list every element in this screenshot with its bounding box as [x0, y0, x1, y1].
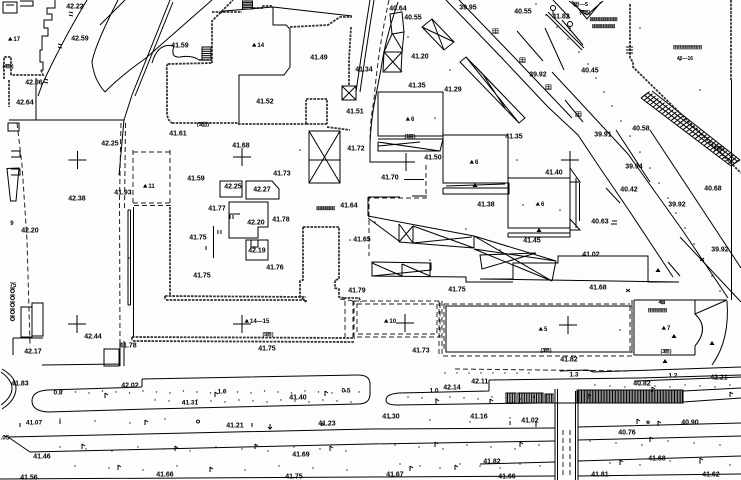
- svg-text:41.31: 41.31: [182, 399, 199, 406]
- svg-text:(1: (1: [405, 134, 410, 140]
- svg-text:): ): [12, 64, 14, 70]
- svg-text:41.35: 41.35: [408, 83, 426, 90]
- svg-text:.05: .05: [1, 434, 10, 441]
- svg-text:41.75: 41.75: [258, 346, 276, 353]
- svg-text:40.45: 40.45: [581, 68, 599, 75]
- svg-text:40.55: 40.55: [514, 9, 532, 16]
- svg-text:41.75: 41.75: [193, 273, 211, 280]
- svg-text:9: 9: [10, 221, 14, 227]
- svg-text:5: 5: [544, 327, 548, 333]
- svg-text:41.81: 41.81: [591, 472, 609, 479]
- svg-text:41.64: 41.64: [340, 203, 358, 210]
- svg-text:42.59: 42.59: [71, 36, 89, 43]
- svg-text:): ): [550, 348, 552, 354]
- svg-text:0.8: 0.8: [54, 389, 63, 396]
- svg-text:42.14: 42.14: [443, 385, 461, 392]
- svg-text:40.90: 40.90: [681, 420, 699, 427]
- svg-text:1.0: 1.0: [430, 387, 439, 394]
- svg-text:39.91: 39.91: [594, 132, 612, 139]
- svg-text:41.77: 41.77: [208, 206, 226, 213]
- svg-text:41.67: 41.67: [386, 472, 404, 479]
- svg-text:41.93: 41.93: [114, 190, 132, 197]
- svg-text:39.92: 39.92: [711, 247, 729, 254]
- svg-text:40.64: 40.64: [389, 6, 407, 13]
- svg-text:41.76: 41.76: [266, 265, 284, 272]
- svg-text:7: 7: [667, 326, 671, 332]
- svg-text:41.68: 41.68: [589, 285, 607, 292]
- svg-text:40.42: 40.42: [620, 187, 638, 194]
- svg-text:1.3: 1.3: [570, 371, 579, 378]
- svg-text:42.21: 42.21: [710, 375, 728, 382]
- svg-text:42.06: 42.06: [25, 80, 43, 87]
- svg-text:—5: —5: [580, 2, 589, 8]
- svg-text:41.49: 41.49: [310, 55, 328, 62]
- svg-text:41.23: 41.23: [318, 421, 336, 428]
- svg-text:1.0: 1.0: [218, 388, 227, 395]
- svg-text:(5: (5: [263, 332, 268, 338]
- svg-text:6: 6: [541, 202, 545, 208]
- svg-text:): ): [670, 349, 672, 355]
- svg-text:41.46: 41.46: [33, 454, 51, 461]
- svg-text:17: 17: [13, 37, 20, 43]
- svg-text:41.59: 41.59: [171, 43, 189, 50]
- svg-text:42.17: 42.17: [24, 349, 42, 356]
- svg-text:41.82: 41.82: [552, 14, 570, 21]
- svg-text:41.61: 41.61: [169, 131, 187, 138]
- svg-text:41.45: 41.45: [523, 238, 541, 245]
- svg-text:41.78: 41.78: [272, 217, 290, 224]
- svg-text:42.22: 42.22: [66, 4, 84, 11]
- svg-text:41.69: 41.69: [292, 452, 310, 459]
- svg-text:6: 6: [411, 117, 415, 123]
- svg-text:(4: (4: [3, 64, 8, 70]
- svg-text:41.82: 41.82: [560, 357, 578, 364]
- svg-text:41.66: 41.66: [156, 472, 174, 479]
- svg-text:40—16: 40—16: [677, 56, 693, 62]
- svg-text:41.21: 41.21: [226, 423, 244, 430]
- svg-text:40.55: 40.55: [404, 15, 422, 22]
- svg-text:40.58: 40.58: [632, 126, 650, 133]
- svg-text:6: 6: [475, 160, 479, 166]
- svg-text:0.5: 0.5: [342, 387, 351, 394]
- svg-text:41.68: 41.68: [232, 143, 250, 150]
- svg-text:40.82: 40.82: [633, 381, 651, 388]
- svg-text:42.02: 42.02: [121, 383, 139, 390]
- svg-text:42.25: 42.25: [101, 141, 119, 148]
- svg-text:(5: (5: [714, 146, 719, 152]
- svg-text:39.94: 39.94: [625, 164, 643, 171]
- svg-text:41.78: 41.78: [119, 343, 137, 350]
- svg-text:41.79: 41.79: [348, 288, 366, 295]
- svg-text:41.75: 41.75: [189, 235, 207, 242]
- svg-text:40.63: 40.63: [591, 219, 609, 226]
- svg-text:42.64: 42.64: [16, 100, 34, 107]
- svg-text:41.65: 41.65: [353, 237, 371, 244]
- svg-text:41.73: 41.73: [412, 348, 430, 355]
- svg-text:(3: (3: [661, 349, 666, 355]
- svg-text:41.20: 41.20: [411, 54, 429, 61]
- svg-text:41.29: 41.29: [444, 87, 462, 94]
- svg-text:(3: (3: [197, 122, 202, 128]
- svg-text:42.11: 42.11: [471, 379, 488, 386]
- svg-text:11: 11: [148, 184, 155, 190]
- svg-text:41.07: 41.07: [26, 419, 43, 426]
- svg-text:42.20: 42.20: [21, 228, 39, 235]
- svg-text:41.50: 41.50: [424, 155, 442, 162]
- svg-text:40.76: 40.76: [618, 430, 636, 437]
- svg-text:39.92: 39.92: [668, 202, 686, 209]
- svg-text:41.73: 41.73: [273, 171, 291, 178]
- svg-text:41.75: 41.75: [285, 474, 303, 480]
- svg-text:41.30: 41.30: [382, 414, 400, 421]
- svg-text:42.38: 42.38: [68, 196, 86, 203]
- svg-text:42.27: 42.27: [253, 187, 271, 194]
- svg-text:41.59: 41.59: [187, 176, 205, 183]
- svg-text:41.62: 41.62: [702, 472, 720, 479]
- svg-text:): ): [207, 122, 209, 128]
- svg-text:41.56: 41.56: [20, 475, 38, 480]
- svg-text:41.75: 41.75: [448, 287, 466, 294]
- svg-text:40.68: 40.68: [704, 186, 722, 193]
- svg-text:42.25: 42.25: [224, 184, 242, 191]
- svg-text:42.19: 42.19: [248, 248, 266, 255]
- svg-text:41.66: 41.66: [498, 474, 516, 480]
- svg-text:1.2: 1.2: [669, 372, 678, 379]
- svg-text:41.82: 41.82: [483, 459, 501, 466]
- svg-text:75: 75: [10, 283, 17, 289]
- svg-text:14—15: 14—15: [250, 319, 270, 325]
- svg-text:41.70: 41.70: [381, 175, 399, 182]
- svg-text:41.72: 41.72: [347, 146, 365, 153]
- svg-text:39.92: 39.92: [529, 72, 547, 79]
- svg-text:41.40: 41.40: [545, 170, 563, 177]
- svg-text:10: 10: [389, 319, 396, 325]
- svg-text:41.52: 41.52: [256, 99, 274, 106]
- svg-text:41.34: 41.34: [355, 67, 373, 74]
- svg-text:(3: (3: [541, 348, 546, 354]
- svg-text:42.44: 42.44: [84, 334, 102, 341]
- svg-text:39.95: 39.95: [459, 5, 477, 12]
- svg-text:41.40: 41.40: [289, 395, 307, 402]
- svg-text:41.68: 41.68: [648, 456, 666, 463]
- svg-text:41.02: 41.02: [582, 252, 600, 259]
- svg-text:41.35: 41.35: [505, 134, 523, 141]
- svg-text:14: 14: [257, 43, 264, 49]
- svg-text:42.20: 42.20: [247, 220, 265, 227]
- svg-text:41.38: 41.38: [477, 202, 495, 209]
- svg-text:41.83: 41.83: [11, 381, 29, 388]
- svg-text:41.02: 41.02: [521, 418, 539, 425]
- svg-text:41.51: 41.51: [346, 109, 364, 116]
- svg-text:41.16: 41.16: [470, 414, 488, 421]
- svg-text:(7: (7: [580, 10, 585, 16]
